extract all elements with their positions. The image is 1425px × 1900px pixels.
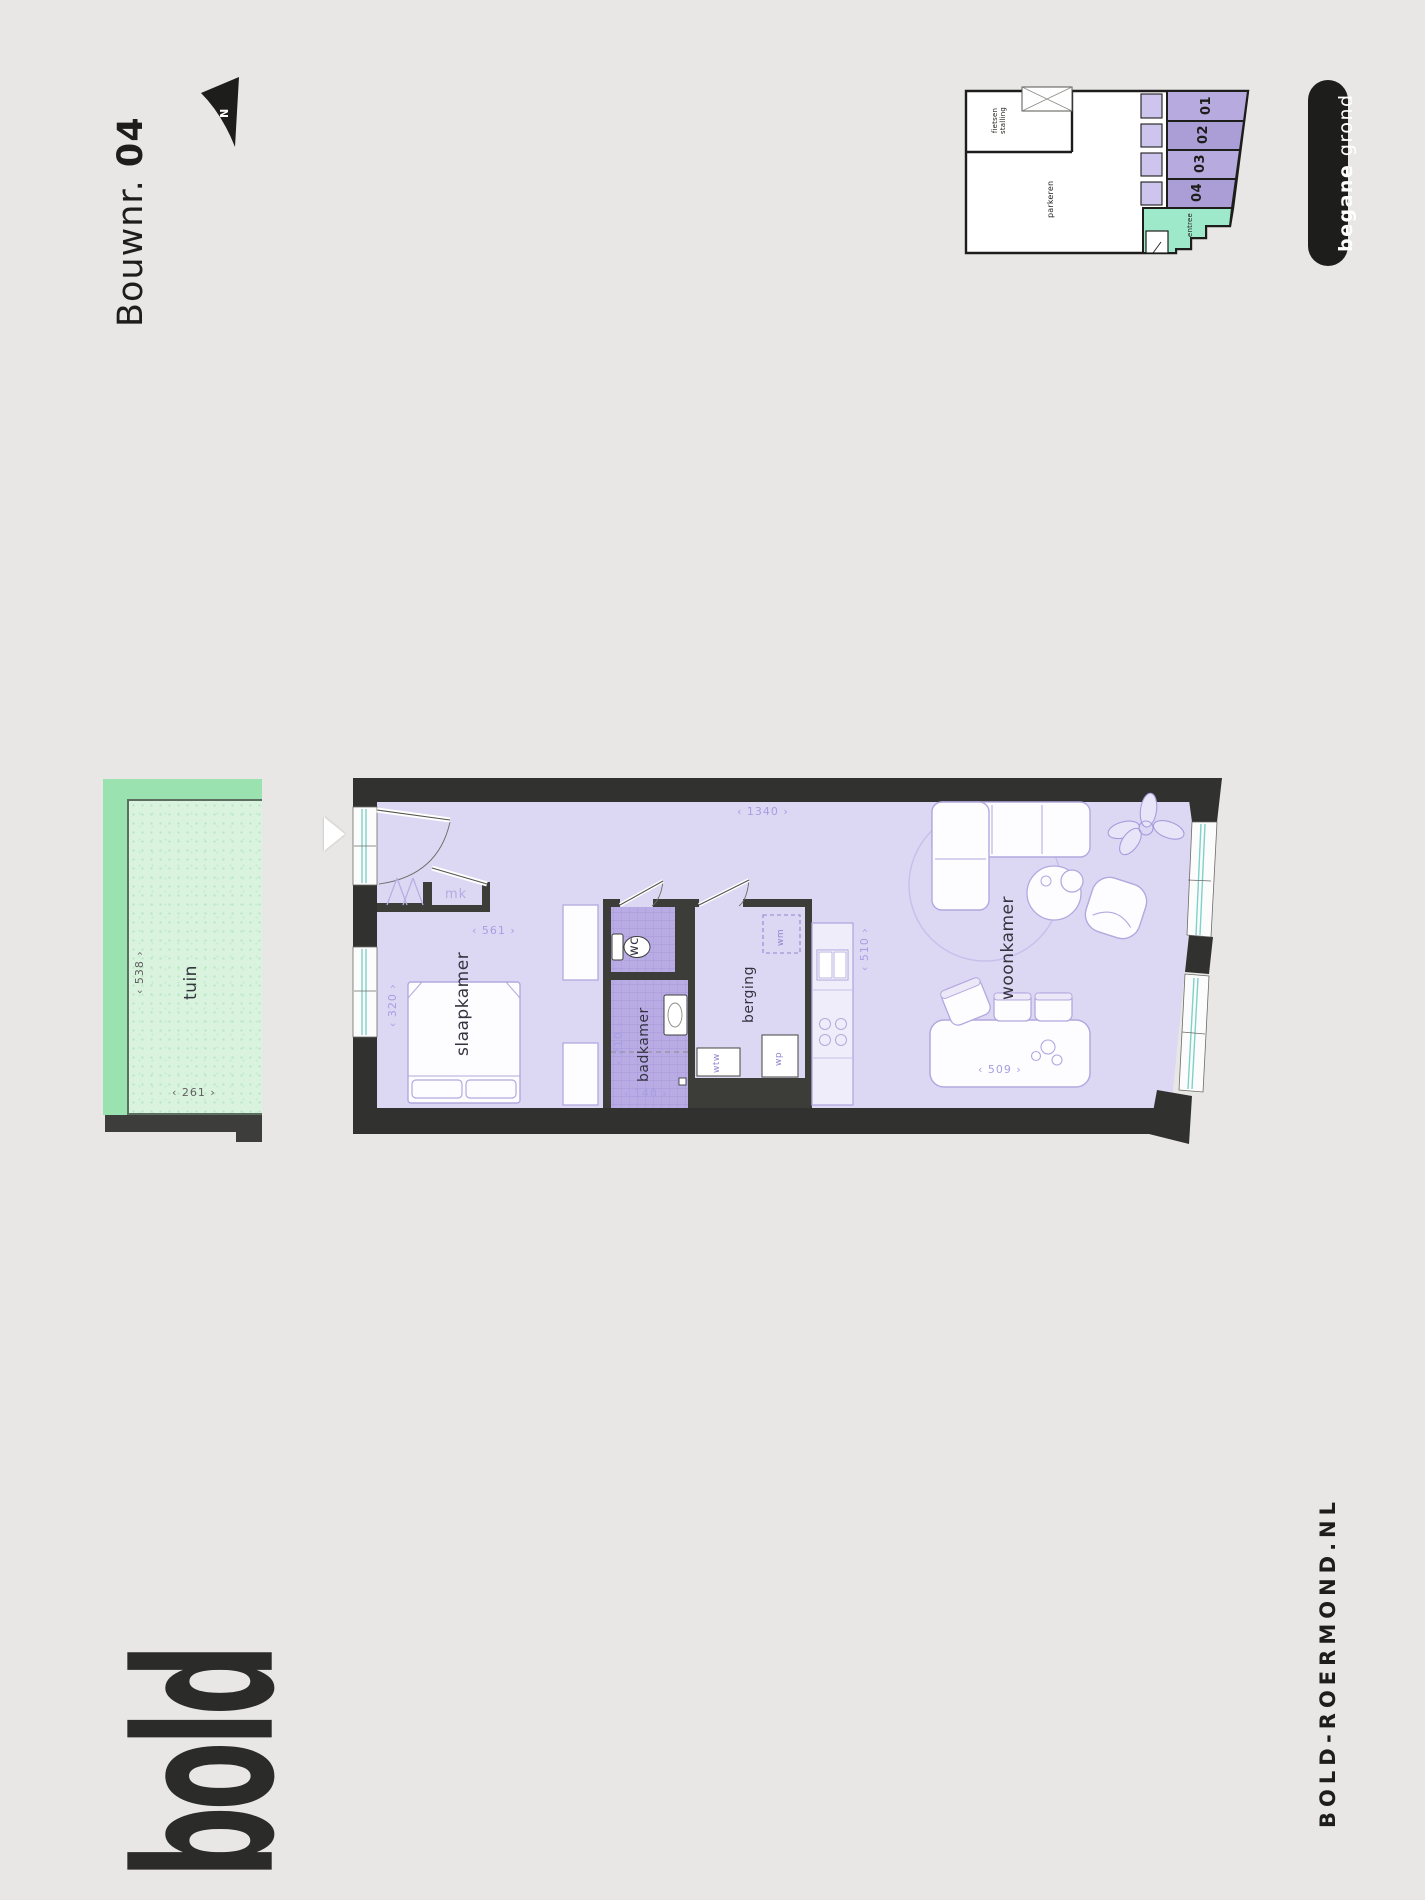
page-title-label: Bouwnr. (111, 179, 151, 327)
garden-wall-step (236, 1128, 262, 1142)
dim-bedroom-width: ‹ 320 › (386, 983, 399, 1027)
bathroom-label: badkamer (636, 1007, 652, 1082)
washbasin (664, 995, 687, 1035)
dim-bathroom-length: ‹ 210 › (612, 1021, 625, 1065)
dim-hall-width: ‹ 561 › (472, 924, 516, 937)
level-badge-text: begane grond (1335, 93, 1357, 252)
dining-table (930, 1020, 1090, 1087)
meter-closet-label: mk (445, 887, 467, 902)
north-label: N (218, 109, 231, 118)
site-unit-03: 03 (1193, 154, 1208, 173)
heat-recovery-label: wtw (712, 1053, 722, 1073)
garden-width-dim: ‹ 538 › (133, 950, 146, 994)
level-badge: begane grond (1308, 80, 1348, 266)
site-entrance-label: entree (1186, 213, 1194, 237)
page-title: Bouwnr. 04 (111, 116, 151, 327)
site-unit-02: 02 (1196, 125, 1211, 144)
plan-sheet: Bouwnr. 04 N (0, 0, 1425, 1900)
toilet-label: wc (627, 937, 642, 956)
level-badge-rest: grond (1335, 93, 1357, 156)
floor-plan-drawing (341, 760, 1236, 1155)
dim-table-width: ‹ 509 › (978, 1063, 1022, 1076)
washing-machine-label: wm (776, 929, 786, 946)
bedroom-label: slaapkamer (453, 952, 473, 1056)
garden-lawn (127, 799, 262, 1115)
level-badge-emphasis: begane (1335, 164, 1357, 252)
site-plan-map: fietsen stalling parkeren entree 01 02 0… (960, 85, 1252, 257)
dim-total-length: ‹ 1340 › (737, 805, 789, 818)
site-unit-04: 04 (1190, 183, 1205, 202)
living-room-label: woonkamer (998, 896, 1018, 1000)
page-title-number: 04 (111, 116, 151, 167)
website-url: BOLD-ROERMOND.NL (1316, 1497, 1340, 1828)
garden-depth-dim: ‹ 261 › (172, 1086, 216, 1099)
storage-label: berging (741, 966, 757, 1023)
dim-bathroom-width: ‹ 140 › (624, 1087, 668, 1100)
site-unit-01: 01 (1199, 96, 1214, 115)
kitchen-counter (812, 923, 853, 1105)
site-parking-label: parkeren (1046, 181, 1055, 218)
heat-pump-label: wp (774, 1052, 784, 1066)
garden-label: tuin (181, 965, 201, 1000)
dim-kitchen-length: ‹ 510 › (858, 927, 871, 971)
site-bike-label: fietsen stalling (991, 107, 1007, 134)
brand-logo: bold (95, 1648, 317, 1878)
floor-plan: slaapkamer wc badkamer berging woonkamer… (341, 760, 1236, 1155)
